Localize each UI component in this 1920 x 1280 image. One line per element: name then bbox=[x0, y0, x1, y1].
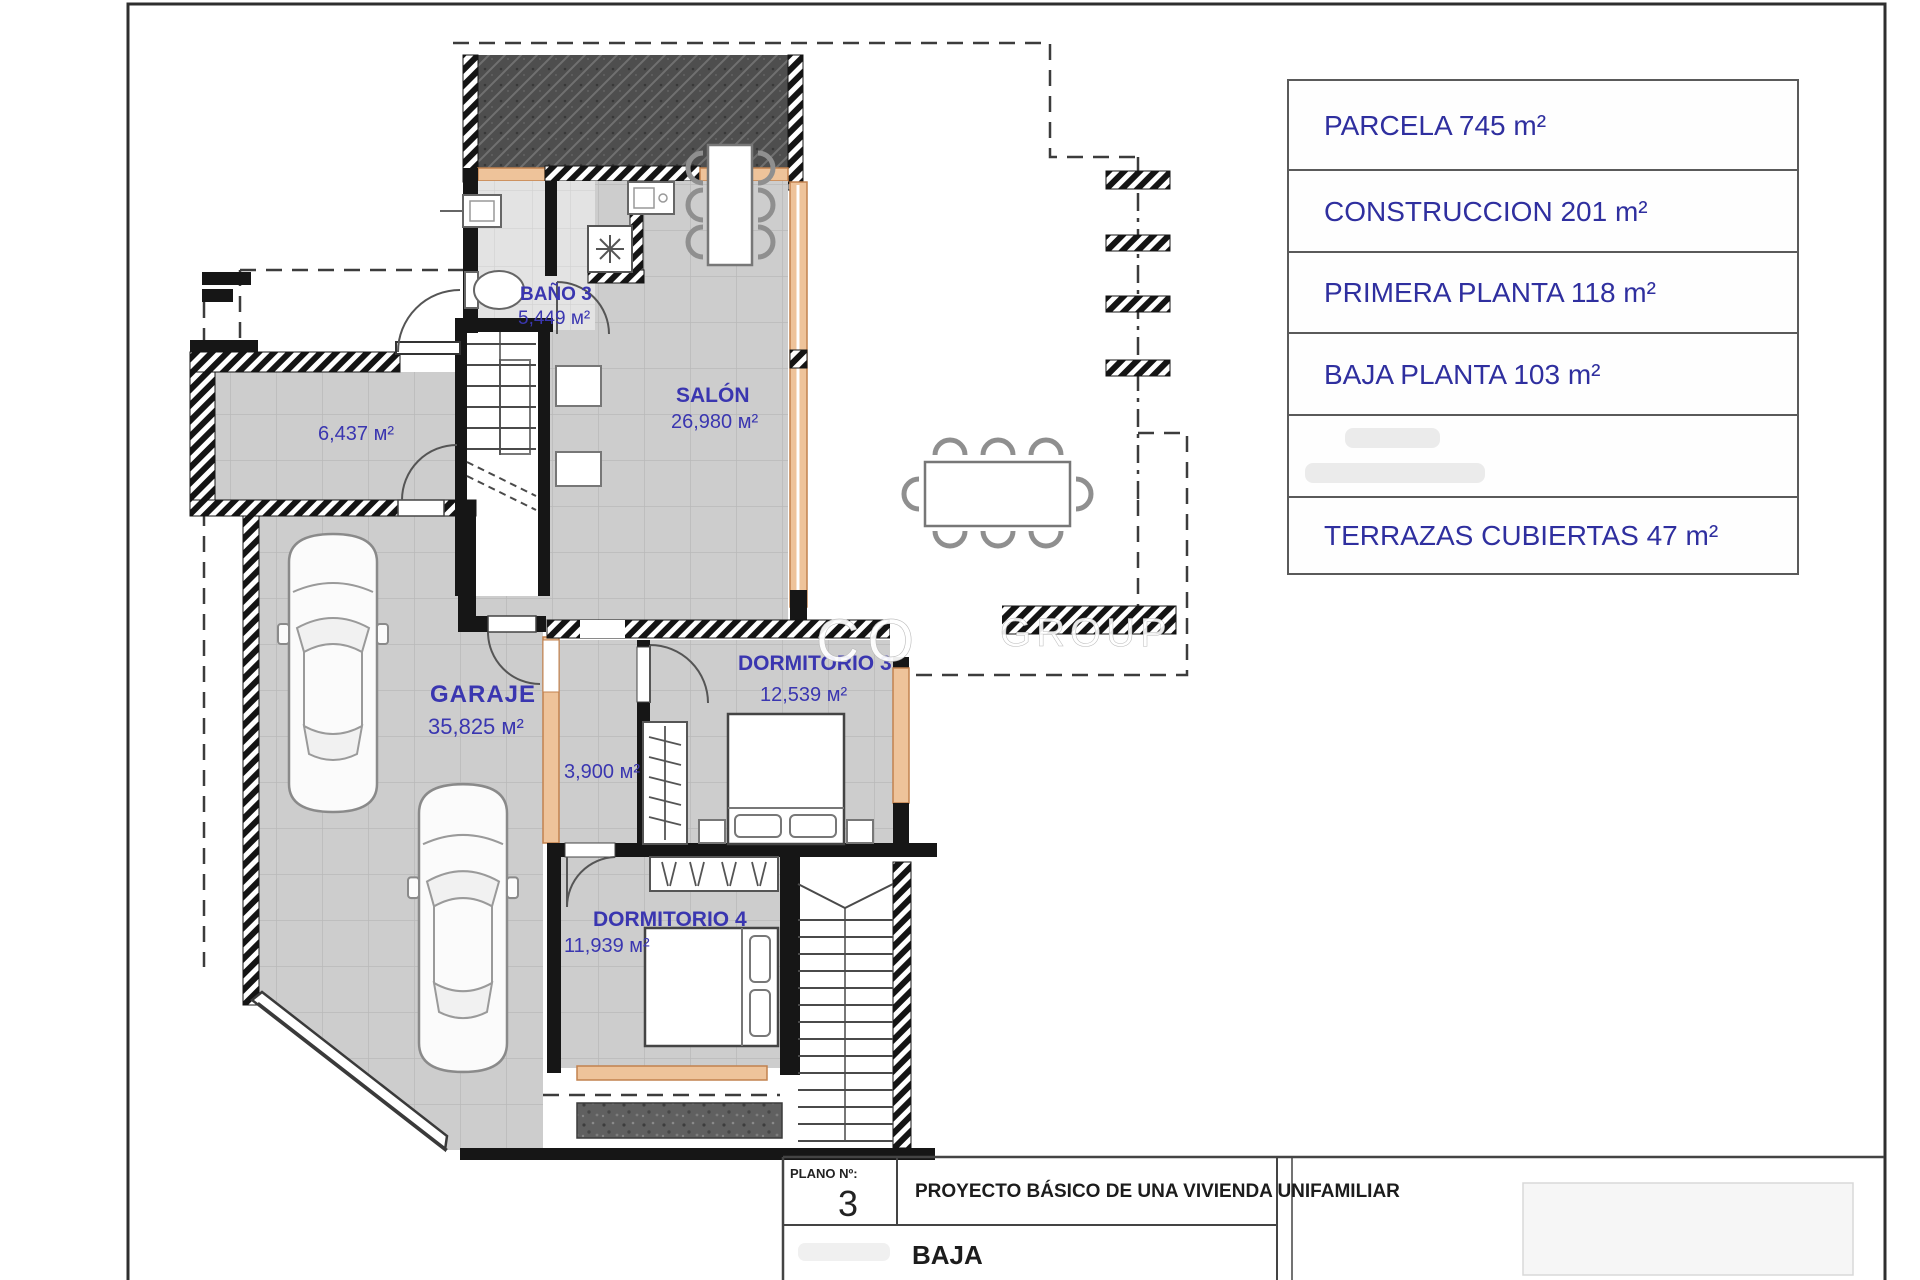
label-dormitorio4: DORMITORIO 4 bbox=[593, 908, 747, 931]
label-bano3: BAÑO 3 bbox=[520, 283, 592, 305]
label-salon: SALÓN bbox=[676, 383, 750, 407]
wardrobe-dorm4 bbox=[650, 857, 778, 891]
wardrobe-dorm3 bbox=[643, 722, 687, 844]
label-bano3-area: 5,449 м² bbox=[518, 308, 590, 329]
table-row: BAJA PLANTA 103 m² bbox=[1324, 359, 1601, 390]
plano-label: PLANO Nº: bbox=[790, 1166, 858, 1181]
plano-number: 3 bbox=[838, 1183, 858, 1224]
floor-plan-screenshot: BAÑO 3 5,449 м² SALÓN 26,980 м² 6,437 м²… bbox=[0, 0, 1920, 1280]
label-dormitorio4-area: 11,939 м² bbox=[564, 935, 650, 957]
exterior-stair bbox=[798, 884, 893, 1141]
title-block: PLANO Nº: 3 PROYECTO BÁSICO DE UNA VIVIE… bbox=[783, 1157, 1884, 1280]
bed-dorm4 bbox=[645, 928, 778, 1046]
project-title: PROYECTO BÁSICO DE UNA VIVIENDA UNIFAMIL… bbox=[915, 1180, 1400, 1202]
label-dormitorio3-area: 12,539 м² bbox=[760, 684, 847, 706]
label-pasillo-area: 3,900 м² bbox=[564, 761, 640, 783]
table-row: TERRAZAS CUBIERTAS 47 m² bbox=[1324, 520, 1718, 551]
floor-plan-sheet: BAÑO 3 5,449 м² SALÓN 26,980 м² 6,437 м²… bbox=[0, 0, 1920, 1280]
watermark-left: CO bbox=[816, 607, 922, 674]
logo-box-faint bbox=[1523, 1183, 1853, 1275]
label-salon-area: 26,980 м² bbox=[671, 411, 758, 433]
label-garaje: GARAJE bbox=[430, 681, 536, 708]
area-info-table: PARCELA 745 m² CONSTRUCCION 201 m² PRIME… bbox=[1288, 80, 1798, 574]
table-row: PRIMERA PLANTA 118 m² bbox=[1324, 277, 1656, 308]
label-garaje-area: 35,825 м² bbox=[428, 714, 524, 739]
floor-name: BAJA bbox=[912, 1240, 983, 1270]
watermark-right: GROUP bbox=[1000, 611, 1172, 655]
terrace-dining-table bbox=[904, 440, 1091, 546]
erased-smudge bbox=[798, 1243, 890, 1261]
table-row: PARCELA 745 m² bbox=[1324, 110, 1546, 141]
table-row: CONSTRUCCION 201 m² bbox=[1324, 196, 1648, 227]
label-trastero-area: 6,437 м² bbox=[318, 423, 394, 445]
